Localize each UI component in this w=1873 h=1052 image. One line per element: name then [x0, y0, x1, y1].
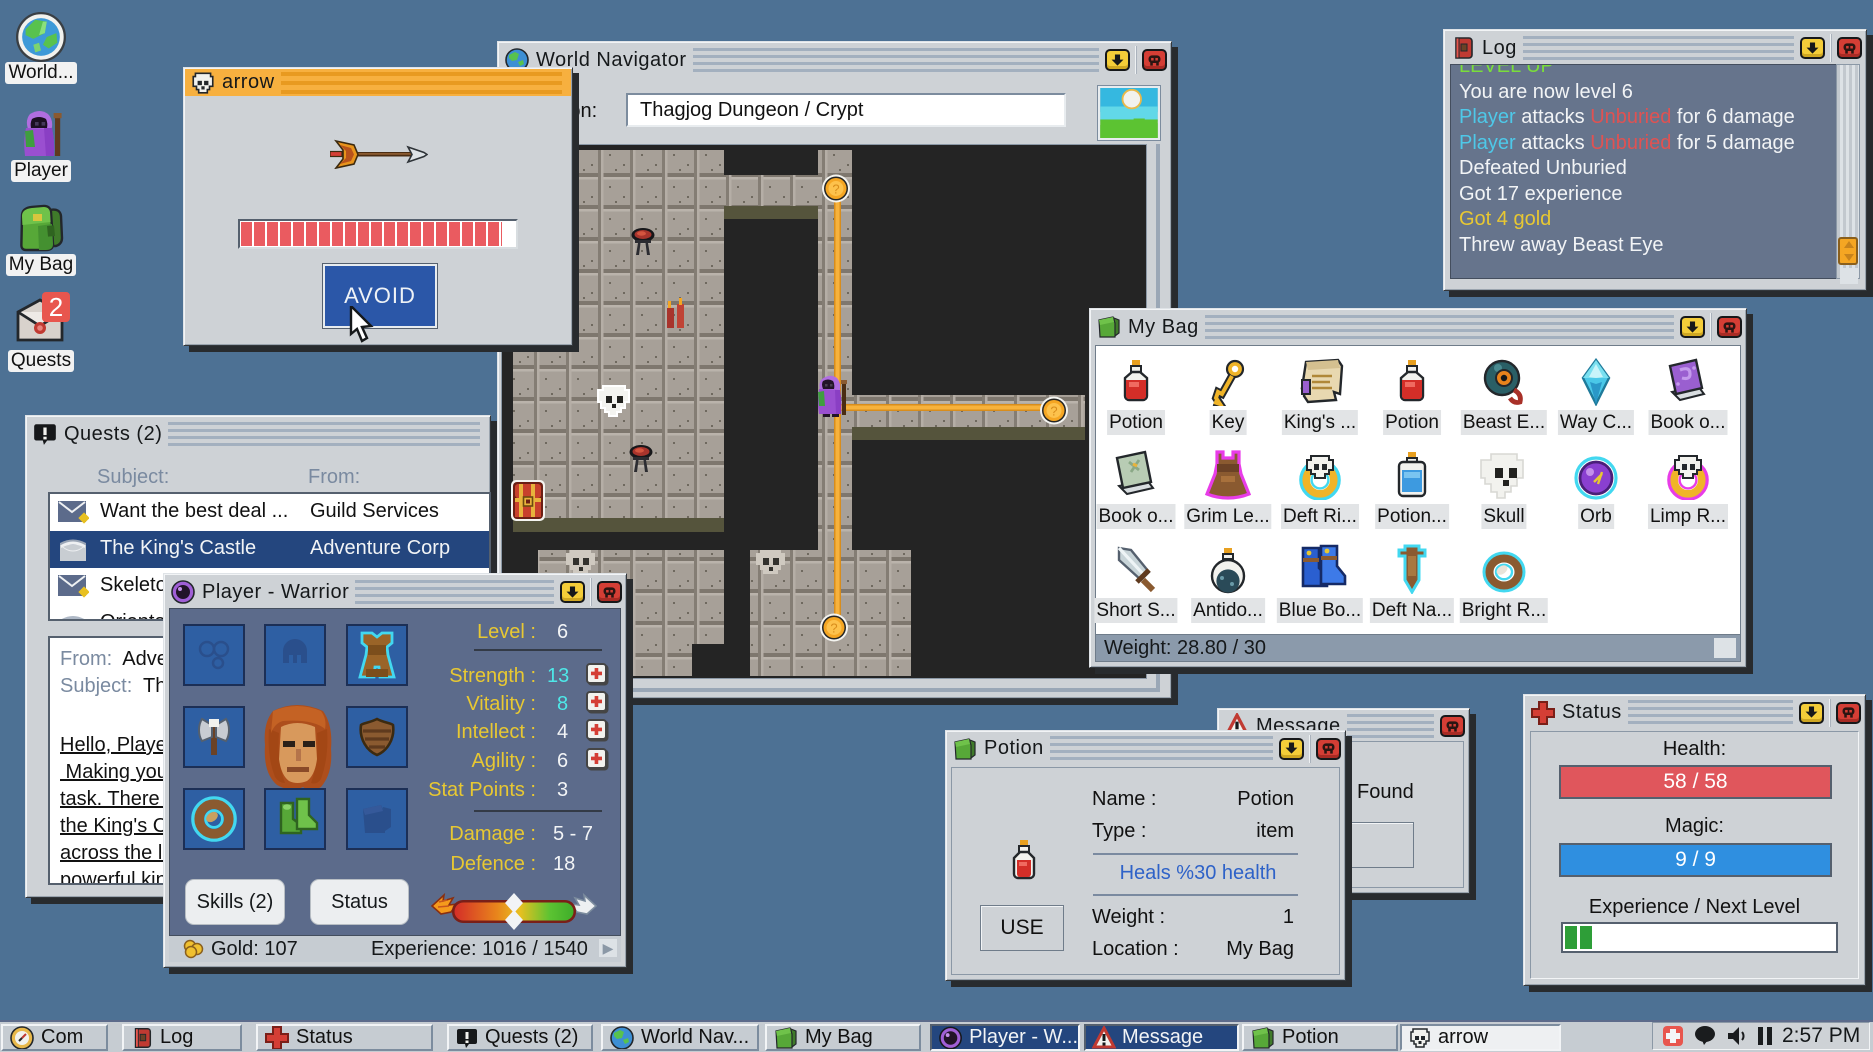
svg-text:?: ? — [830, 621, 837, 636]
svg-text:?: ? — [1050, 404, 1057, 419]
svg-text:?: ? — [832, 182, 839, 197]
svg-text:2: 2 — [49, 292, 63, 322]
